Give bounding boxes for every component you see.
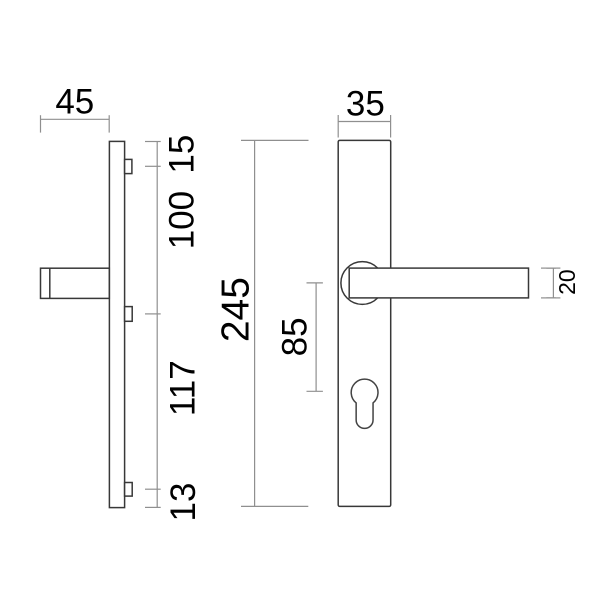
svg-text:20: 20 [554, 269, 580, 295]
svg-text:35: 35 [346, 84, 385, 123]
svg-text:245: 245 [215, 277, 258, 342]
svg-text:15: 15 [163, 135, 202, 174]
svg-text:13: 13 [164, 483, 203, 522]
svg-text:100: 100 [163, 191, 202, 249]
svg-text:45: 45 [55, 82, 94, 121]
svg-text:117: 117 [164, 360, 203, 416]
svg-text:85: 85 [275, 317, 314, 356]
